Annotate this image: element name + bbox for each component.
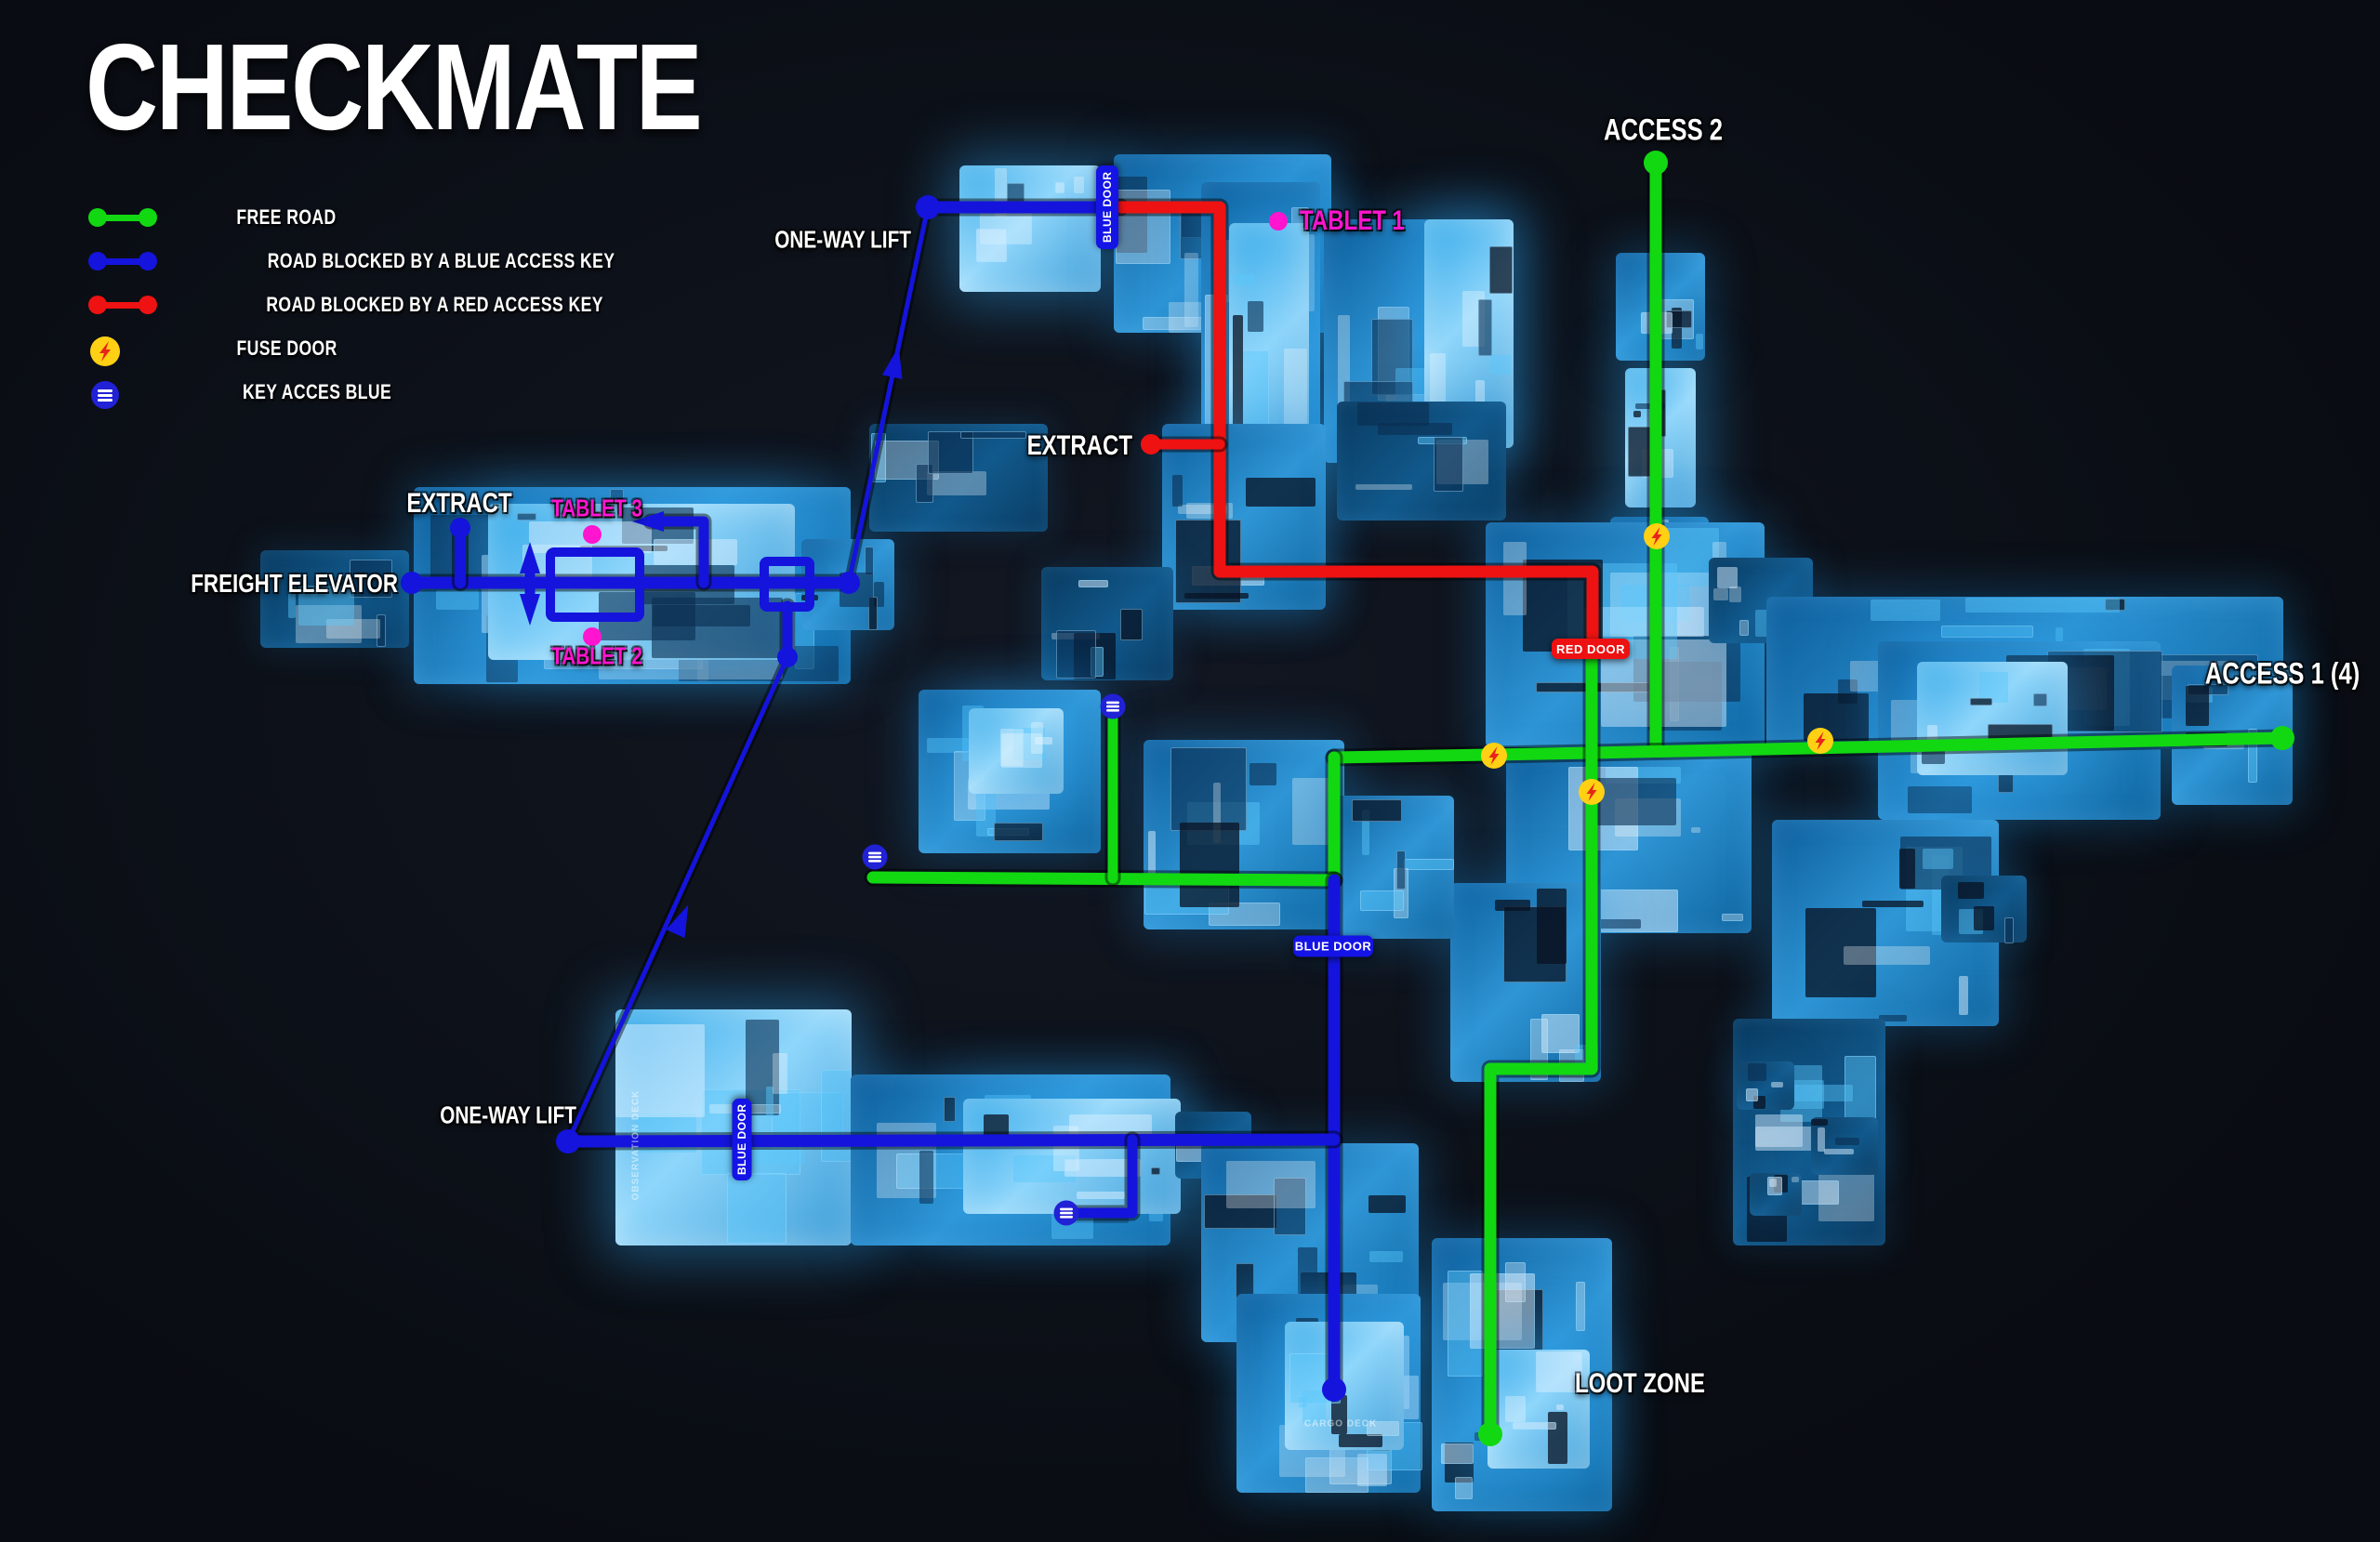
- route-loot-route: [1490, 656, 1592, 1434]
- label-one-way-lift-bottom: ONE-WAY LIFT: [406, 1101, 576, 1130]
- route-endpoint-dot: [556, 1129, 580, 1153]
- one-way-arrow-icon: [520, 542, 540, 573]
- route-second-green-line: [873, 877, 1334, 880]
- route-tablet3-branch: [651, 521, 704, 583]
- route-endpoint-dot: [777, 647, 798, 667]
- tablet-dot: [583, 525, 602, 544]
- label-tablet-1: TABLET 1: [1300, 205, 1431, 237]
- one-way-arrow-icon: [520, 594, 540, 626]
- label-extract-left: EXTRACT: [393, 488, 525, 520]
- room-name-text: OBSERVATION DECK: [631, 1090, 641, 1201]
- label-tablet-2: TABLET 2: [540, 642, 654, 671]
- fuse-door-icon: [1807, 728, 1833, 754]
- route-one-way-lift-diagonal-bottom: [568, 657, 787, 1141]
- door-badge: BLUE DOOR: [1096, 165, 1118, 249]
- door-badge: BLUE DOOR: [733, 1099, 752, 1180]
- label-loot-zone: LOOT ZONE: [1559, 1368, 1722, 1400]
- route-one-way-lift-diagonal-top: [849, 207, 928, 583]
- label-freight-elevator: FREIGHT ELEVATOR: [139, 569, 398, 599]
- route-endpoint-dot: [1644, 151, 1668, 175]
- route-endpoint-dot: [1478, 1422, 1502, 1446]
- fuse-door-icon: [1481, 743, 1507, 769]
- label-access-2: ACCESS 2: [1589, 113, 1738, 148]
- map-canvas: CHECKMATE FREE ROADROAD BLOCKED BY A BLU…: [0, 0, 2380, 1542]
- fuse-door-icon: [1579, 779, 1605, 805]
- route-endpoint-dot: [838, 572, 860, 594]
- route-endpoint-dot: [1141, 434, 1161, 455]
- tablet-dot: [1269, 212, 1288, 231]
- key-access-icon: [1054, 1201, 1079, 1226]
- label-one-way-lift-top: ONE-WAY LIFT: [741, 226, 911, 255]
- room-name-text: CARGO DECK: [1304, 1419, 1377, 1430]
- route-endpoint-dot: [1322, 1377, 1346, 1402]
- label-extract-mid: EXTRACT: [1000, 430, 1132, 462]
- route-endpoint-dot: [2270, 726, 2294, 750]
- key-access-icon: [863, 845, 888, 870]
- route-endpoint-dot: [401, 572, 423, 594]
- door-badge: RED DOOR: [1552, 639, 1630, 659]
- route-bottom-corridor: [568, 1140, 1334, 1141]
- key-access-icon: [1101, 694, 1126, 719]
- label-access-1: ACCESS 1 (4): [2186, 657, 2379, 692]
- route-endpoint-dot: [450, 518, 470, 538]
- route-key-bottom-stub: [1066, 1140, 1132, 1213]
- label-tablet-3: TABLET 3: [540, 494, 654, 523]
- route-endpoint-dot: [916, 195, 940, 219]
- routes-svg: [0, 0, 2380, 1542]
- routes-overlay: BLUE DOORRED DOORBLUE DOORBLUE DOORACCES…: [0, 0, 2380, 1542]
- fuse-door-icon: [1644, 523, 1670, 549]
- door-badge: BLUE DOOR: [1293, 936, 1373, 957]
